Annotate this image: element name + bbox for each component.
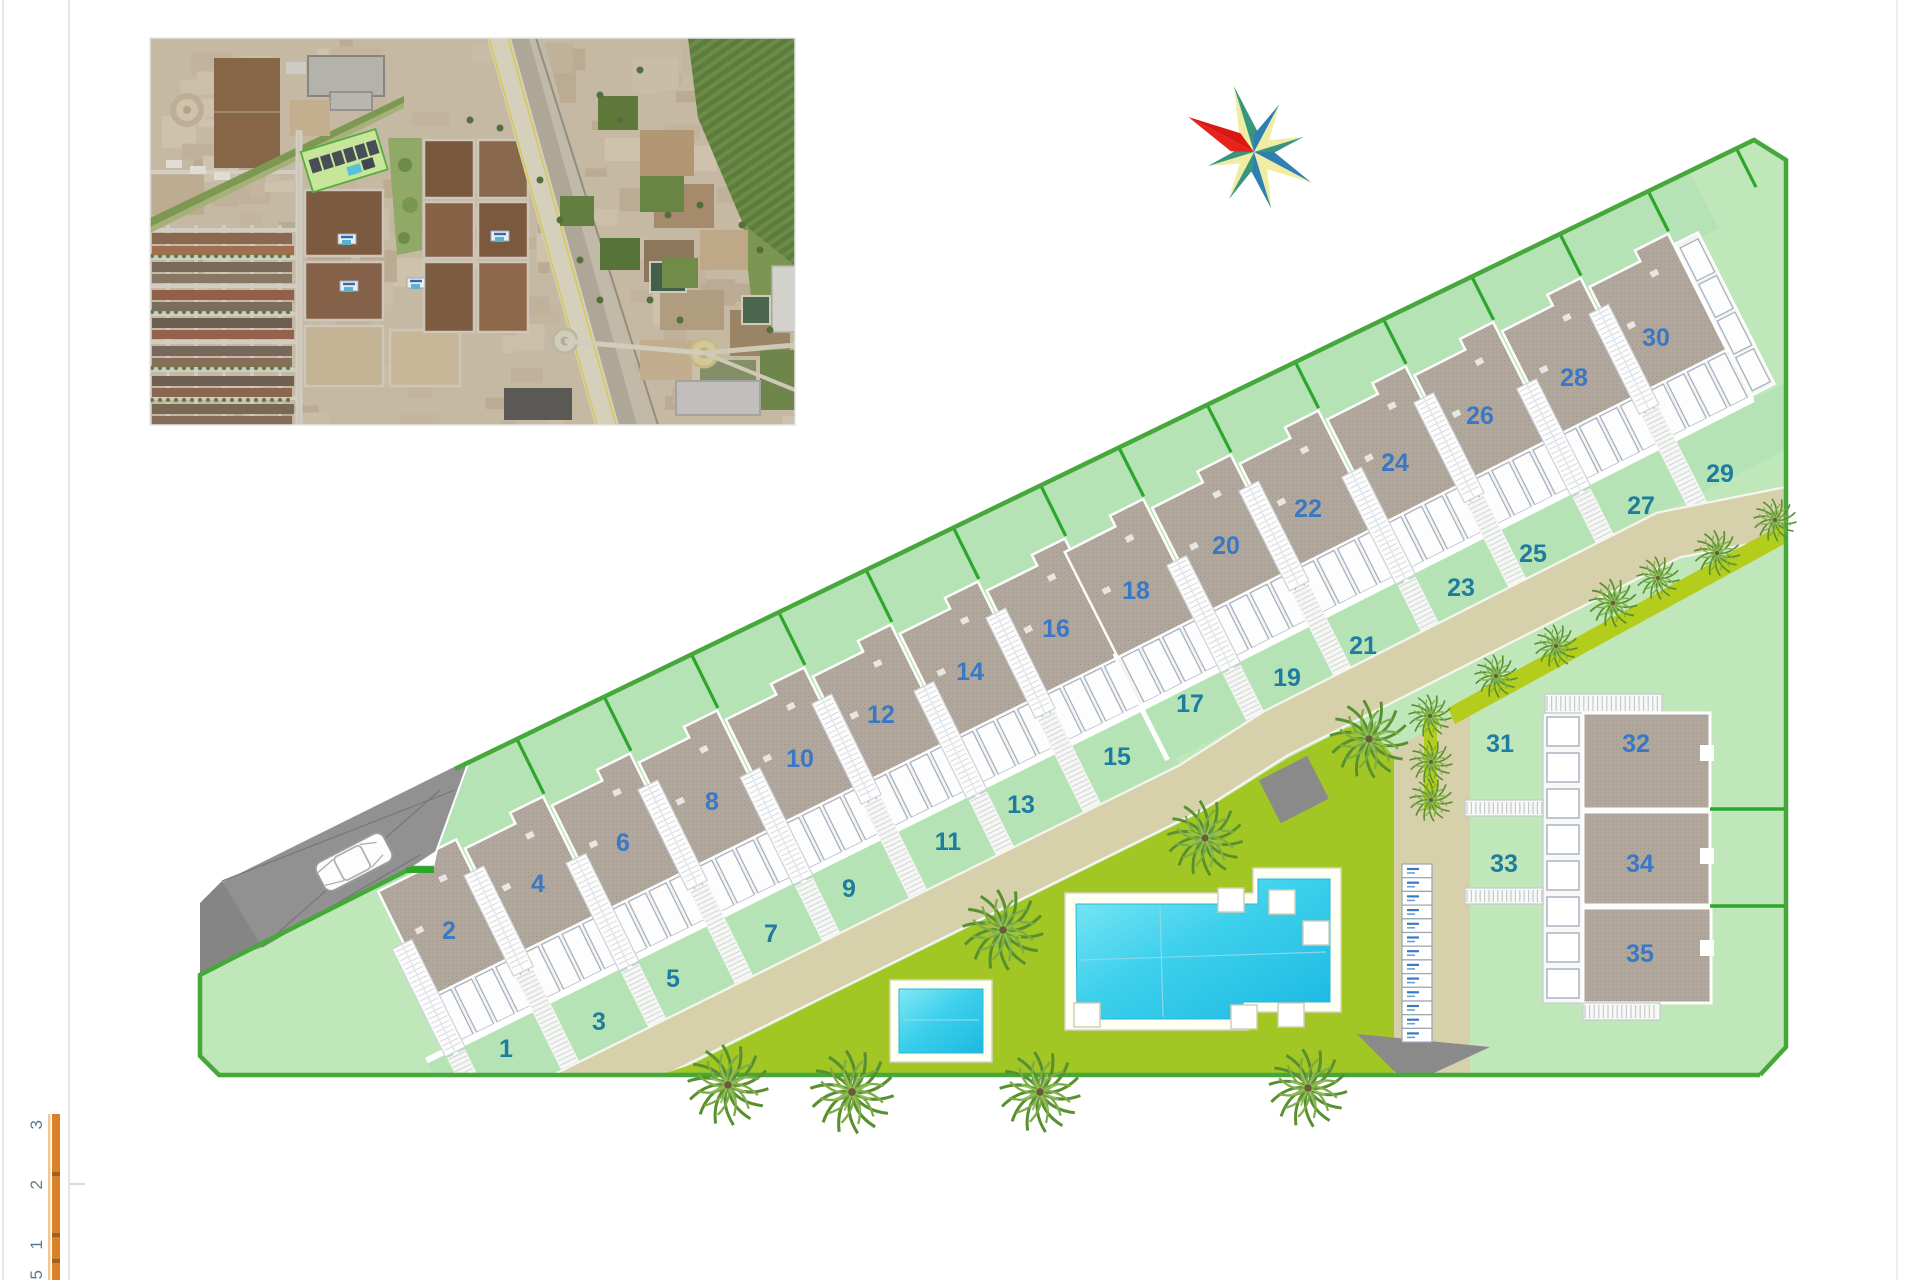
svg-text:18: 18: [1122, 577, 1150, 605]
svg-text:10: 10: [786, 745, 814, 773]
svg-text:16: 16: [1042, 615, 1070, 643]
svg-text:30: 30: [1642, 324, 1670, 352]
svg-text:13: 13: [1007, 791, 1035, 819]
svg-text:7: 7: [764, 920, 778, 948]
svg-text:34: 34: [1626, 850, 1654, 878]
svg-text:9: 9: [842, 875, 856, 903]
svg-text:27: 27: [1627, 492, 1655, 520]
svg-text:23: 23: [1447, 574, 1475, 602]
svg-text:1: 1: [499, 1035, 513, 1063]
svg-text:25: 25: [1519, 540, 1547, 568]
svg-text:15: 15: [1103, 743, 1131, 771]
svg-text:28: 28: [1560, 364, 1588, 392]
svg-text:1: 1: [27, 1240, 46, 1249]
svg-text:12: 12: [867, 701, 895, 729]
svg-text:22: 22: [1294, 495, 1322, 523]
svg-text:29: 29: [1706, 460, 1734, 488]
svg-text:3: 3: [27, 1120, 46, 1129]
svg-text:20: 20: [1212, 532, 1240, 560]
svg-text:8: 8: [705, 788, 719, 816]
svg-text:0,5: 0,5: [27, 1270, 46, 1280]
svg-text:21: 21: [1349, 632, 1377, 660]
svg-text:24: 24: [1381, 449, 1409, 477]
svg-text:2: 2: [442, 917, 456, 945]
svg-text:5: 5: [666, 965, 680, 993]
svg-text:14: 14: [956, 658, 984, 686]
svg-text:26: 26: [1466, 402, 1494, 430]
svg-text:2: 2: [27, 1180, 46, 1189]
svg-text:4: 4: [531, 870, 545, 898]
svg-text:11: 11: [935, 828, 962, 856]
svg-text:19: 19: [1273, 664, 1301, 692]
svg-text:35: 35: [1626, 940, 1654, 968]
svg-text:6: 6: [616, 829, 630, 857]
svg-text:31: 31: [1486, 730, 1514, 758]
svg-text:32: 32: [1622, 730, 1650, 758]
svg-text:3: 3: [592, 1008, 606, 1036]
svg-text:33: 33: [1490, 850, 1518, 878]
svg-text:17: 17: [1176, 690, 1204, 718]
